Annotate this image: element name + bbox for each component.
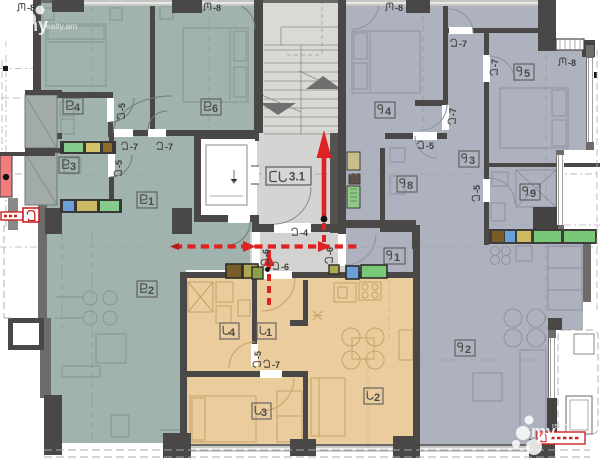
svg-text:realty: realty — [552, 423, 570, 430]
svg-text:1: 1 — [266, 327, 272, 339]
svg-text:1: 1 — [394, 252, 400, 264]
svg-text:2: 2 — [374, 392, 380, 404]
svg-text:3: 3 — [469, 155, 475, 167]
svg-text:4: 4 — [385, 106, 392, 118]
svg-text:4: 4 — [229, 327, 236, 339]
svg-text:-7: -7 — [448, 108, 458, 116]
svg-text:4: 4 — [74, 102, 81, 114]
svg-text:9: 9 — [530, 188, 536, 200]
svg-text:-7: -7 — [272, 360, 280, 370]
svg-text:-7: -7 — [490, 59, 500, 67]
svg-text:3: 3 — [70, 161, 76, 173]
svg-text:-8: -8 — [213, 3, 221, 13]
svg-text:-8: -8 — [568, 58, 576, 68]
svg-text:5: 5 — [524, 68, 530, 80]
svg-text:6: 6 — [212, 103, 218, 115]
svg-text:-6: -6 — [325, 247, 335, 255]
svg-text:2: 2 — [148, 285, 154, 297]
svg-text:-7: -7 — [459, 39, 467, 49]
svg-text:-7: -7 — [165, 142, 173, 152]
svg-text:1: 1 — [148, 196, 154, 208]
svg-text:-5: -5 — [426, 141, 434, 151]
svg-text:-5: -5 — [117, 103, 127, 111]
svg-text:3.1: 3.1 — [289, 172, 306, 184]
svg-text:-5: -5 — [114, 160, 124, 168]
svg-text:3: 3 — [261, 407, 267, 419]
svg-text:-6: -6 — [261, 249, 271, 257]
svg-text:-4: -4 — [300, 228, 308, 238]
svg-text:-8: -8 — [395, 3, 403, 13]
svg-text:-8: -8 — [27, 3, 35, 13]
svg-text:2: 2 — [465, 344, 471, 356]
svg-text:-5: -5 — [253, 351, 263, 359]
svg-text:-6: -6 — [281, 262, 289, 272]
svg-text:8: 8 — [407, 180, 413, 192]
svg-text:realty.am: realty.am — [43, 21, 77, 31]
svg-text:-5: -5 — [472, 185, 482, 193]
svg-text:-7: -7 — [130, 142, 138, 152]
